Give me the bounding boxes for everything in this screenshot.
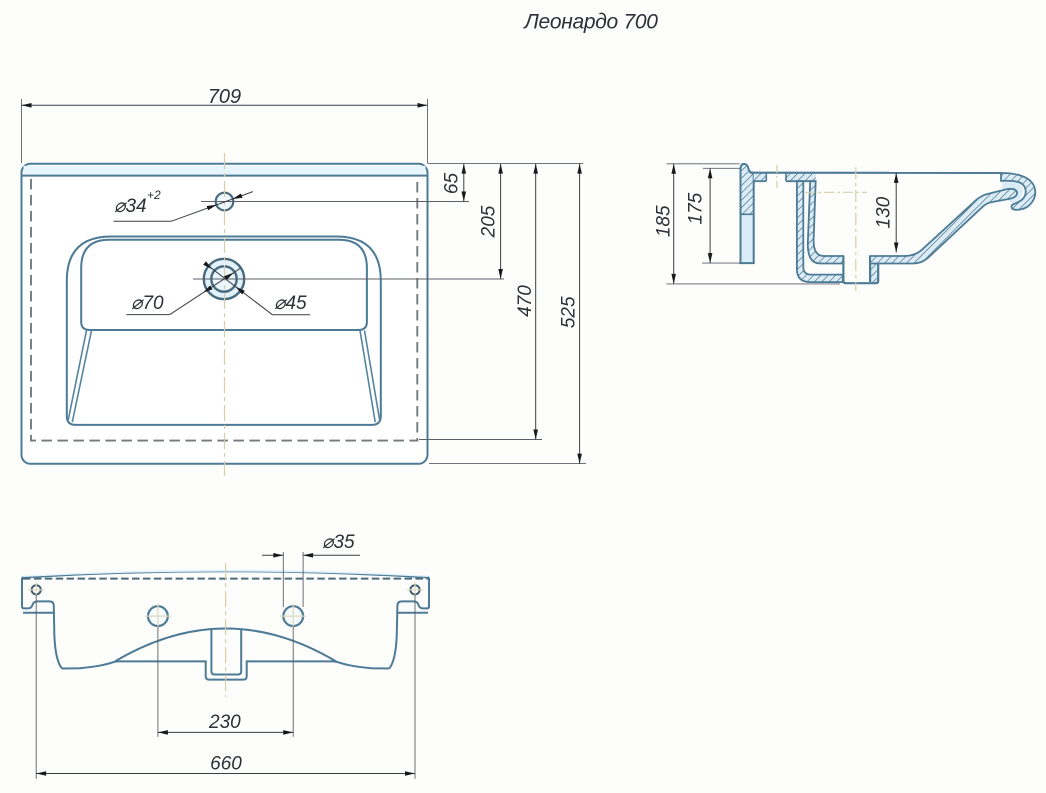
svg-text:470: 470 xyxy=(515,285,536,317)
svg-text:+2: +2 xyxy=(147,188,161,202)
svg-text:205: 205 xyxy=(479,205,500,238)
svg-text:175: 175 xyxy=(685,192,706,224)
svg-text:130: 130 xyxy=(874,196,895,228)
svg-text:⌀70: ⌀70 xyxy=(131,293,164,314)
svg-text:709: 709 xyxy=(208,86,241,108)
svg-text:Леонардо 700: Леонардо 700 xyxy=(522,11,658,34)
svg-text:⌀45: ⌀45 xyxy=(274,293,307,314)
svg-text:660: 660 xyxy=(210,754,242,775)
svg-text:525: 525 xyxy=(559,296,580,328)
svg-text:65: 65 xyxy=(442,173,463,195)
svg-text:185: 185 xyxy=(654,205,675,237)
svg-text:230: 230 xyxy=(208,712,241,733)
svg-text:⌀35: ⌀35 xyxy=(322,532,355,553)
svg-text:⌀34: ⌀34 xyxy=(114,196,147,217)
